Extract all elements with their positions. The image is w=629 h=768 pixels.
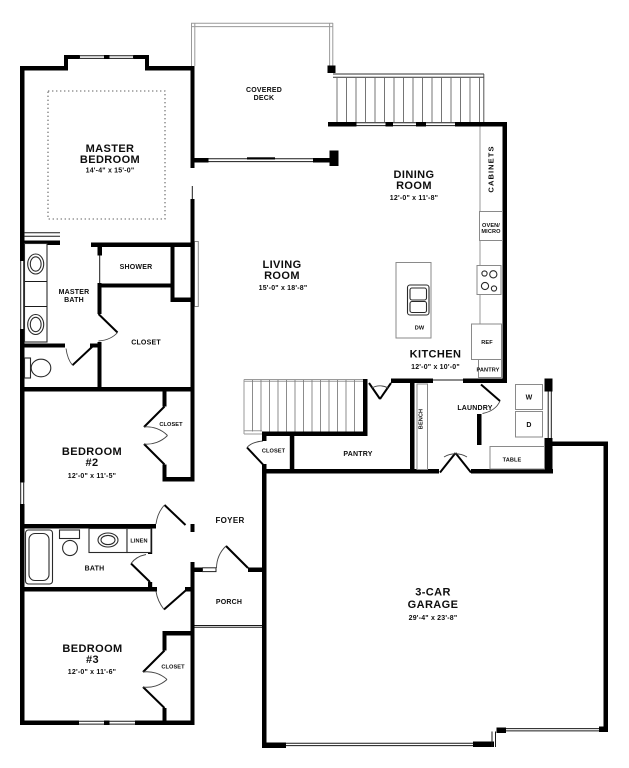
svg-text:KITCHEN: KITCHEN [410,349,462,361]
svg-text:12'-0" x 10'-0": 12'-0" x 10'-0" [411,364,460,371]
svg-text:REF: REF [481,340,493,346]
svg-text:BEDROOM: BEDROOM [80,154,140,166]
svg-text:CLOSET: CLOSET [131,340,161,347]
svg-text:14'-4" x 15'-0": 14'-4" x 15'-0" [86,168,135,175]
svg-text:ROOM: ROOM [396,180,432,192]
svg-text:PANTRY: PANTRY [477,368,500,374]
svg-text:12'-0" x 11'-5": 12'-0" x 11'-5" [68,473,116,480]
svg-text:CLOSET: CLOSET [262,449,286,455]
svg-text:SHOWER: SHOWER [120,264,153,271]
svg-text:12'-0" x 11'-6": 12'-0" x 11'-6" [68,669,116,676]
svg-text:12'-0" x 11'-8": 12'-0" x 11'-8" [390,195,438,202]
svg-text:BATH: BATH [85,566,105,573]
svg-text:FOYER: FOYER [215,516,244,525]
svg-text:BATH: BATH [64,297,84,304]
svg-text:BENCH: BENCH [419,409,425,429]
svg-text:15'-0" x 18'-8": 15'-0" x 18'-8" [259,285,308,292]
svg-text:MASTER: MASTER [59,289,90,296]
svg-text:LINEN: LINEN [130,539,147,545]
svg-text:CLOSET: CLOSET [161,665,185,671]
svg-text:PANTRY: PANTRY [343,451,372,458]
svg-text:TABLE: TABLE [503,458,522,464]
svg-text:W: W [526,395,533,402]
svg-text:3-CAR: 3-CAR [415,587,451,599]
svg-text:COVERED: COVERED [246,87,282,94]
svg-text:CABINETS: CABINETS [487,145,496,192]
svg-text:MICRO: MICRO [481,229,501,235]
svg-text:PORCH: PORCH [216,599,242,606]
svg-text:#2: #2 [85,457,98,469]
svg-text:29'-4" x 23'-8": 29'-4" x 23'-8" [409,615,458,622]
svg-text:DW: DW [415,326,425,332]
svg-text:ROOM: ROOM [264,270,300,282]
svg-text:CLOSET: CLOSET [159,422,183,428]
svg-text:LAUNDRY: LAUNDRY [457,405,492,412]
svg-text:DECK: DECK [254,95,275,102]
svg-text:D: D [526,422,531,429]
svg-text:GARAGE: GARAGE [408,599,459,611]
svg-text:#3: #3 [86,654,99,666]
